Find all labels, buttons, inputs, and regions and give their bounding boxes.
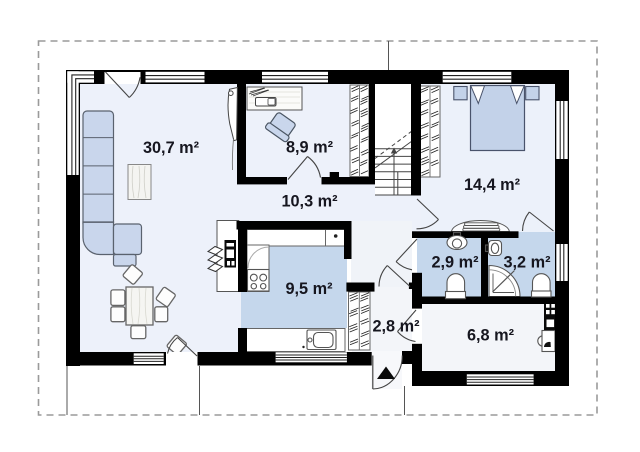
svg-text:9,5 m²: 9,5 m² [285, 280, 333, 298]
svg-text:8,9 m²: 8,9 m² [286, 139, 334, 157]
svg-text:6,8 m²: 6,8 m² [467, 327, 515, 345]
svg-text:14,4 m²: 14,4 m² [464, 176, 521, 194]
svg-text:2,9 m²: 2,9 m² [431, 254, 479, 272]
svg-text:2,8 m²: 2,8 m² [372, 318, 420, 336]
svg-text:30,7 m²: 30,7 m² [143, 139, 200, 157]
svg-text:10,3 m²: 10,3 m² [281, 193, 338, 211]
svg-text:3,2 m²: 3,2 m² [503, 254, 551, 272]
